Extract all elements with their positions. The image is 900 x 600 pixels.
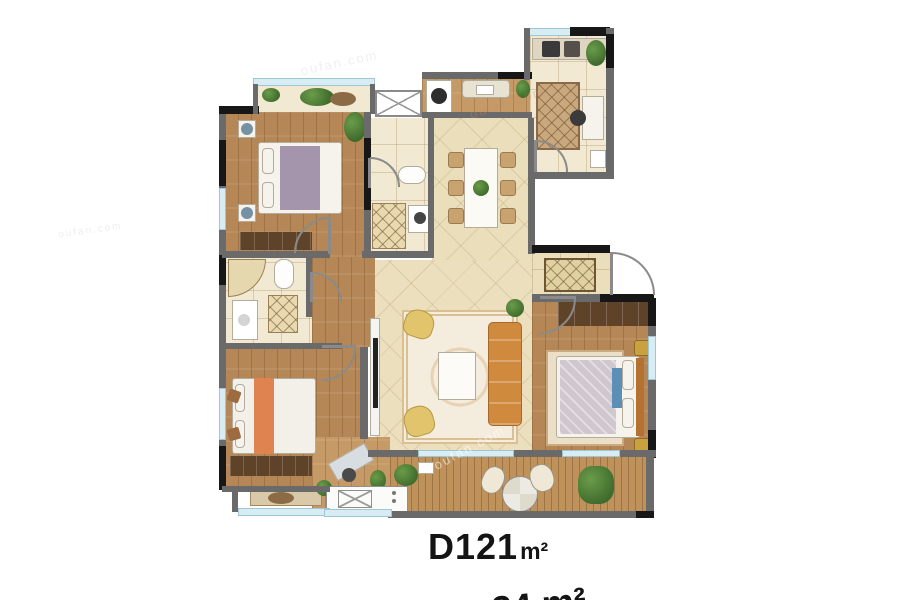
door-leaf	[368, 158, 371, 188]
entry-doormat	[544, 258, 596, 292]
hall-table	[476, 85, 494, 95]
washer-drum-icon	[431, 88, 447, 104]
dresser-master	[230, 456, 312, 476]
wall	[232, 490, 238, 512]
bed-runner-orange	[254, 378, 274, 454]
wall-segment	[219, 255, 226, 285]
pillow	[262, 148, 274, 174]
pillow	[262, 182, 274, 208]
plant-icon	[394, 464, 418, 486]
plant-icon	[506, 299, 524, 317]
balcony-shelf	[418, 462, 434, 474]
dining-chair	[448, 180, 464, 196]
pillow	[622, 398, 634, 428]
window	[219, 188, 226, 230]
dining-chair	[448, 152, 464, 168]
ac-platform-shaft	[375, 90, 422, 117]
pillow	[622, 360, 634, 390]
wall	[528, 172, 535, 254]
headboard-bedroom3	[636, 358, 644, 436]
sink-icon	[564, 41, 580, 57]
plant-icon	[586, 40, 606, 66]
wall-segment	[570, 27, 610, 36]
study-cabinet	[590, 150, 606, 168]
unit-type-label: D121	[428, 526, 518, 568]
lamp-icon	[241, 123, 253, 135]
tv-icon	[373, 338, 378, 408]
wall-segment	[636, 511, 654, 518]
bay-window	[238, 508, 330, 516]
plant-icon	[300, 88, 334, 106]
stove-icon	[542, 41, 560, 57]
wall	[532, 172, 614, 179]
entry-door-leaf	[610, 252, 613, 295]
toilet-icon	[274, 259, 294, 289]
door-leaf	[322, 345, 356, 348]
basket-icon	[330, 92, 356, 106]
window	[324, 509, 392, 517]
washer-drum-icon	[414, 212, 426, 224]
window	[528, 28, 572, 36]
wall-segment	[606, 34, 614, 68]
blanket-bedroom3	[560, 360, 616, 434]
toilet-icon	[398, 166, 426, 184]
door-leaf	[328, 218, 331, 254]
coffee-table	[438, 352, 476, 400]
lamp-icon	[241, 207, 253, 219]
window	[219, 388, 226, 440]
wall-segment	[219, 140, 226, 186]
wall	[360, 347, 368, 439]
door-leaf	[310, 272, 313, 302]
area-unit-label: m²	[520, 538, 548, 565]
wall-segment	[532, 245, 610, 253]
watermark: oufan.com	[58, 221, 124, 241]
wall	[646, 455, 654, 517]
wall	[222, 486, 330, 492]
faucet-knob-icon	[392, 499, 396, 503]
floorplan-caption: D121 m²	[428, 526, 548, 568]
sink-bowl-icon	[238, 314, 250, 326]
centerpiece-plant-icon	[473, 180, 489, 196]
plant-icon	[262, 88, 280, 102]
throw-blanket-icon	[612, 368, 622, 408]
wall	[428, 118, 434, 258]
window	[562, 450, 620, 457]
faucet-knob-icon	[392, 491, 396, 495]
dining-chair	[448, 208, 464, 224]
desk-chair-icon	[342, 468, 356, 482]
clipped-caption: 34 m²	[490, 579, 588, 600]
plant-icon	[344, 112, 366, 142]
desk-chair-icon	[570, 110, 586, 126]
sofa	[488, 322, 522, 426]
door-leaf	[540, 296, 576, 299]
door-leaf	[534, 140, 537, 172]
wall	[362, 251, 432, 258]
shower-mat	[372, 203, 406, 249]
wall	[524, 28, 530, 80]
dining-chair	[500, 208, 516, 224]
room-hallway	[312, 257, 375, 347]
dining-chair	[500, 180, 516, 196]
bath-rug	[268, 295, 298, 333]
wall	[388, 511, 650, 518]
wall-segment	[648, 298, 656, 326]
bench-cushion-icon	[268, 492, 294, 504]
window	[648, 336, 656, 380]
floor-plan-image: oufan.com oufan.com oufan.com oufan.com …	[0, 0, 900, 600]
dining-chair	[500, 152, 516, 168]
wall-segment	[600, 294, 654, 302]
window	[253, 78, 375, 86]
wall	[253, 84, 258, 114]
sink-basin-icon	[338, 490, 372, 508]
plant-icon	[578, 466, 614, 504]
wall-segment	[219, 446, 226, 490]
wall	[370, 84, 375, 114]
blanket-bedroom2	[280, 146, 320, 210]
watermark: oufan.com	[299, 47, 379, 78]
